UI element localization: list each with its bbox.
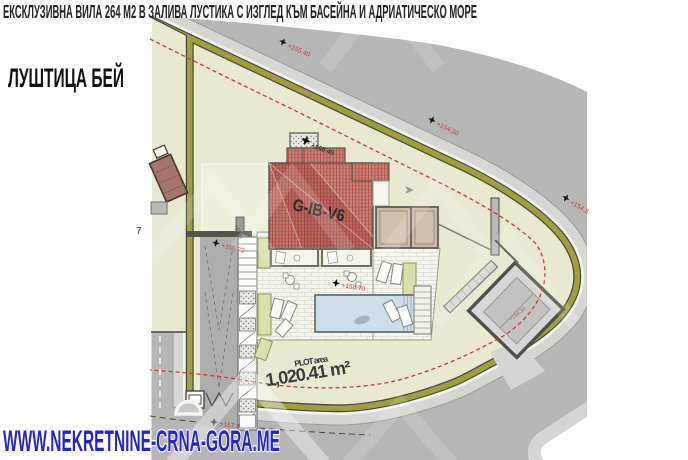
- svg-text:ЛУШТИЦА БЕЙ: ЛУШТИЦА БЕЙ: [8, 62, 124, 93]
- svg-text:ЕКСКЛУЗИВНА ВИЛА 264 М2 В ЗАЛИ: ЕКСКЛУЗИВНА ВИЛА 264 М2 В ЗАЛИВА ЛУСТИКА…: [3, 1, 477, 22]
- svg-text:WWW.NEKRETNINE-CRNA-GORA.ME: WWW.NEKRETNINE-CRNA-GORA.ME: [3, 425, 280, 458]
